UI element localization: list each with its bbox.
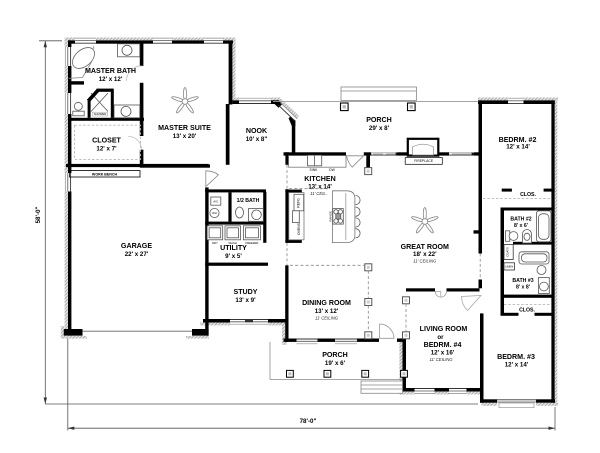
svg-text:COATS: COATS — [506, 247, 510, 257]
svg-text:8' x 8': 8' x 8' — [516, 285, 530, 291]
svg-text:78'-0": 78'-0" — [300, 418, 317, 425]
svg-text:KITCHEN: KITCHEN — [304, 175, 336, 183]
svg-text:29' x 8': 29' x 8' — [369, 125, 390, 132]
svg-text:18' x 22': 18' x 22' — [413, 251, 437, 258]
svg-text:FREEZER: FREEZER — [245, 241, 258, 245]
svg-text:LIVING ROOM: LIVING ROOM — [420, 325, 468, 333]
svg-text:NOOK: NOOK — [246, 127, 268, 135]
svg-text:12' x 16': 12' x 16' — [431, 350, 455, 357]
svg-text:10' x 8": 10' x 8" — [246, 136, 268, 143]
svg-text:8' x 6': 8' x 6' — [514, 223, 528, 229]
svg-text:SHOWER: SHOWER — [94, 112, 107, 116]
svg-text:STUDY: STUDY — [233, 288, 257, 296]
svg-text:13' x 14': 13' x 14' — [308, 184, 332, 191]
svg-text:12' x 7': 12' x 7' — [96, 146, 117, 153]
svg-text:CLOS.: CLOS. — [519, 308, 535, 314]
svg-text:12' x 14': 12' x 14' — [506, 144, 530, 151]
svg-text:12' x 12': 12' x 12' — [99, 76, 123, 83]
svg-text:RANGE: RANGE — [328, 211, 332, 222]
svg-text:BEDRM. #3: BEDRM. #3 — [497, 353, 535, 361]
svg-text:11' CEIL.: 11' CEIL. — [310, 191, 327, 196]
svg-text:13' x 20': 13' x 20' — [173, 133, 197, 140]
svg-text:PORCH: PORCH — [322, 351, 348, 359]
svg-text:BEDRM. #4: BEDRM. #4 — [424, 341, 462, 349]
svg-text:GREAT ROOM: GREAT ROOM — [401, 243, 449, 251]
svg-text:GARAGE: GARAGE — [121, 242, 152, 250]
svg-text:OVENS: OVENS — [297, 222, 301, 235]
svg-text:19' x 6': 19' x 6' — [325, 360, 346, 367]
svg-text:WH: WH — [212, 211, 217, 215]
svg-text:CLOS.: CLOS. — [520, 192, 536, 198]
svg-text:11' CEILING: 11' CEILING — [413, 259, 437, 264]
svg-text:11' CEILING: 11' CEILING — [315, 316, 339, 321]
svg-text:FIREPLACE: FIREPLACE — [414, 159, 434, 163]
svg-text:MASTER BATH: MASTER BATH — [85, 67, 136, 75]
svg-text:UTILITY: UTILITY — [220, 244, 247, 252]
svg-text:REFG: REFG — [297, 198, 301, 208]
svg-text:22' x 27': 22' x 27' — [125, 251, 149, 258]
svg-text:DRY: DRY — [212, 241, 218, 245]
svg-text:A/C: A/C — [213, 200, 219, 204]
svg-text:BATH #3: BATH #3 — [512, 278, 533, 284]
svg-text:BATH #2: BATH #2 — [510, 217, 531, 223]
svg-text:DW: DW — [329, 168, 335, 172]
svg-text:SINK: SINK — [310, 168, 319, 172]
svg-text:58'-0": 58'-0" — [35, 207, 42, 224]
svg-text:or: or — [437, 334, 444, 341]
svg-text:1/2 BATH: 1/2 BATH — [237, 198, 260, 204]
svg-text:LINEN: LINEN — [505, 265, 513, 269]
svg-text:CLOSET: CLOSET — [92, 137, 121, 145]
svg-text:12' x 14': 12' x 14' — [505, 362, 529, 369]
svg-text:DINING ROOM: DINING ROOM — [302, 299, 351, 307]
svg-text:13' x 12': 13' x 12' — [315, 308, 339, 315]
svg-text:11' CEILING: 11' CEILING — [429, 357, 453, 362]
svg-text:13' x 9': 13' x 9' — [235, 297, 256, 304]
svg-text:MASTER SUITE: MASTER SUITE — [158, 124, 211, 132]
svg-text:9' x 5': 9' x 5' — [225, 253, 242, 260]
svg-text:PORCH: PORCH — [366, 116, 392, 124]
svg-text:WORK BENCH: WORK BENCH — [92, 172, 118, 176]
